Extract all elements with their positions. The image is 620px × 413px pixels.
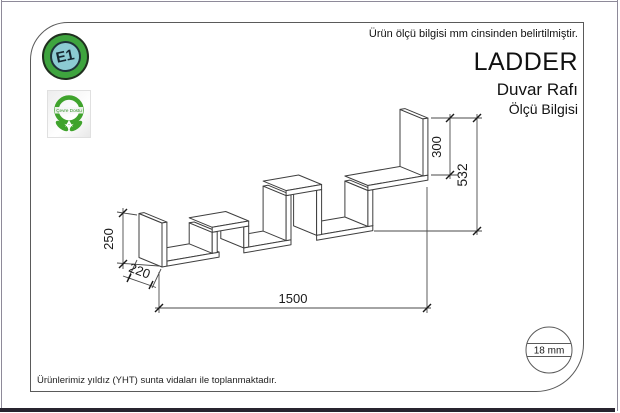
outer-border-bottom-bar <box>0 408 615 412</box>
e1-badge-inner-circle: E1 <box>48 39 82 73</box>
sheet-type: Ölçü Bilgisi <box>474 101 578 117</box>
outer-border-right <box>617 0 618 411</box>
dimension-sheet: 250 220 1500 300 <box>0 0 620 413</box>
outer-border-top <box>1 1 618 2</box>
eco-ribbon-icon: Çevre Dostu <box>48 91 90 137</box>
e1-badge-label: E1 <box>55 46 76 66</box>
eco-friendly-logo: Çevre Dostu <box>47 90 91 138</box>
units-note: Ürün ölçü bilgisi mm cinsinden belirtilm… <box>180 28 578 40</box>
outer-border-left <box>1 0 2 411</box>
eco-logo-label: Çevre Dostu <box>56 108 82 113</box>
assembly-note: Ürünlerimiz yıldız (YHT) sunta vidaları … <box>37 375 277 386</box>
product-name: LADDER <box>474 48 578 77</box>
title-block: LADDER Duvar Rafı Ölçü Bilgisi <box>474 48 578 117</box>
product-type: Duvar Rafı <box>474 80 578 100</box>
